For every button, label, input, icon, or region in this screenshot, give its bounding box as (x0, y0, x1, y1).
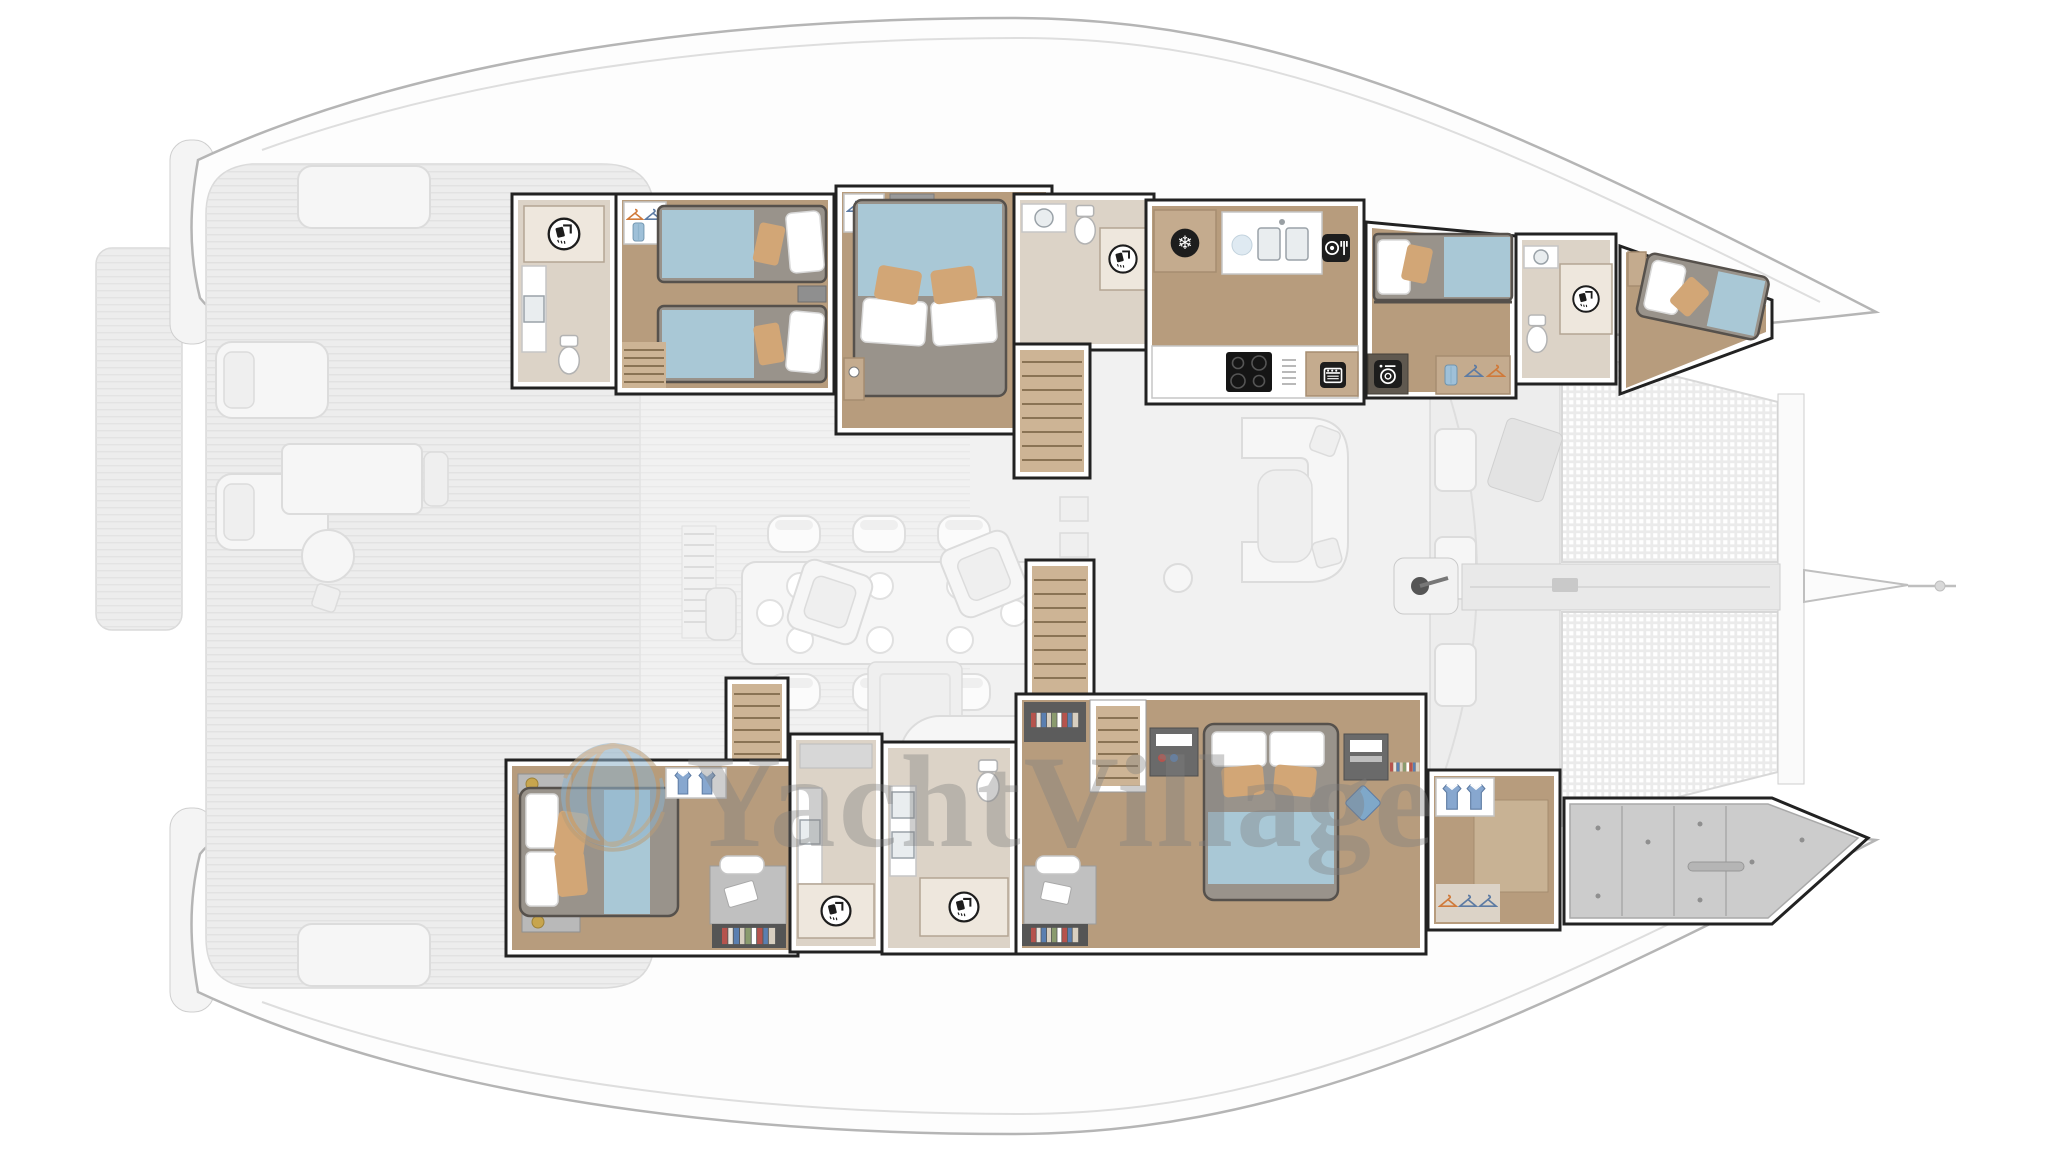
oven (1306, 352, 1358, 396)
cabin-stairs (622, 342, 666, 388)
cooktop (1226, 352, 1272, 392)
accent-cushion (930, 265, 978, 305)
end-seat (706, 588, 736, 640)
galley (1146, 200, 1364, 404)
aft-table (282, 444, 422, 514)
shower-icon (1109, 245, 1136, 272)
foredeck (1394, 340, 1956, 826)
shirt-closet (1436, 778, 1494, 816)
hatch-handle (1688, 862, 1744, 871)
console-box (1060, 497, 1088, 521)
pillow (526, 852, 558, 906)
bow-crossbeam (1778, 394, 1804, 784)
pillow (785, 311, 824, 374)
oven-icon (1320, 362, 1346, 388)
nightstand (844, 358, 864, 400)
shower-icon (950, 893, 979, 922)
lounger-headrest (224, 352, 254, 408)
bowsprit (1804, 570, 1908, 602)
aft-sofa-port (298, 166, 430, 228)
console-box (1060, 533, 1088, 557)
books (1031, 713, 1078, 727)
shower-icon (822, 897, 851, 926)
sink (1258, 228, 1280, 260)
galley-sink-counter (1222, 212, 1322, 274)
shower-icon (549, 219, 580, 250)
lounger-headrest (224, 484, 254, 540)
sink (1534, 250, 1548, 264)
forestay-fitting (1935, 581, 1945, 591)
pillow (785, 211, 824, 274)
beam-cleat (1552, 578, 1578, 592)
toilet (1075, 206, 1096, 244)
sink (524, 296, 544, 322)
nightstand (798, 286, 826, 302)
owner-suite-entry-stairs (1026, 560, 1094, 702)
faucet (1279, 219, 1285, 225)
sink (1035, 209, 1053, 227)
dining-chair (768, 516, 820, 552)
pillow (931, 298, 998, 346)
port-aft-head (512, 194, 616, 388)
books (1031, 928, 1078, 942)
books (722, 928, 775, 944)
sofa-pillow (1311, 537, 1343, 569)
port-forward-head (1014, 194, 1154, 350)
round-stool (1164, 564, 1192, 592)
hanger-locker (1436, 884, 1500, 922)
sink (1286, 228, 1308, 260)
round-side-table (302, 530, 354, 582)
toilet (559, 336, 580, 374)
nav-table (1258, 470, 1312, 562)
starboard-forepeak-dressing (1428, 770, 1560, 930)
bookshelf (712, 924, 786, 948)
yacht-floor-plan: ❄ (0, 0, 2048, 1152)
bunk-beds (1374, 234, 1512, 302)
blanket (662, 210, 754, 278)
pillow (861, 298, 928, 346)
twin-bed (658, 206, 826, 282)
bookshelf (1022, 924, 1088, 946)
pillow (526, 794, 558, 848)
swim-platform-slats (96, 248, 182, 630)
cutlery-icon (1322, 234, 1350, 262)
freezer-icon (1171, 229, 1200, 258)
twin-bed (658, 306, 826, 382)
aft-bench (424, 452, 448, 506)
accent-cushion (554, 851, 588, 898)
port-forward-bunk-cabin (1366, 222, 1516, 398)
watermark-text: YachtVillage (686, 728, 1436, 875)
yacht-floor-plan-canvas: ❄ (0, 0, 2048, 1152)
windlass (1394, 558, 1458, 614)
washing-machine-icon (1374, 360, 1402, 388)
double-bed (854, 200, 1006, 396)
starboard-bow-storage (1564, 798, 1868, 924)
round-sink (1232, 235, 1252, 255)
port-companionway (1014, 344, 1090, 478)
blanket (662, 310, 754, 378)
washing-machine (1368, 354, 1408, 394)
toilet (1527, 315, 1547, 352)
wardrobe (1436, 356, 1510, 394)
freezer (1154, 210, 1216, 272)
port-aft-twin-cabin (616, 194, 834, 394)
shower-icon (1573, 286, 1599, 312)
dining-chair (853, 516, 905, 552)
deck-locker (1435, 429, 1476, 491)
towel-icon (1445, 365, 1457, 385)
trampoline-starboard (1562, 612, 1778, 826)
aft-sofa-starboard (298, 924, 430, 986)
deck-locker (1435, 644, 1476, 706)
towel-icon (633, 223, 644, 241)
blanket (1444, 237, 1510, 297)
port-bow-head (1516, 234, 1616, 384)
